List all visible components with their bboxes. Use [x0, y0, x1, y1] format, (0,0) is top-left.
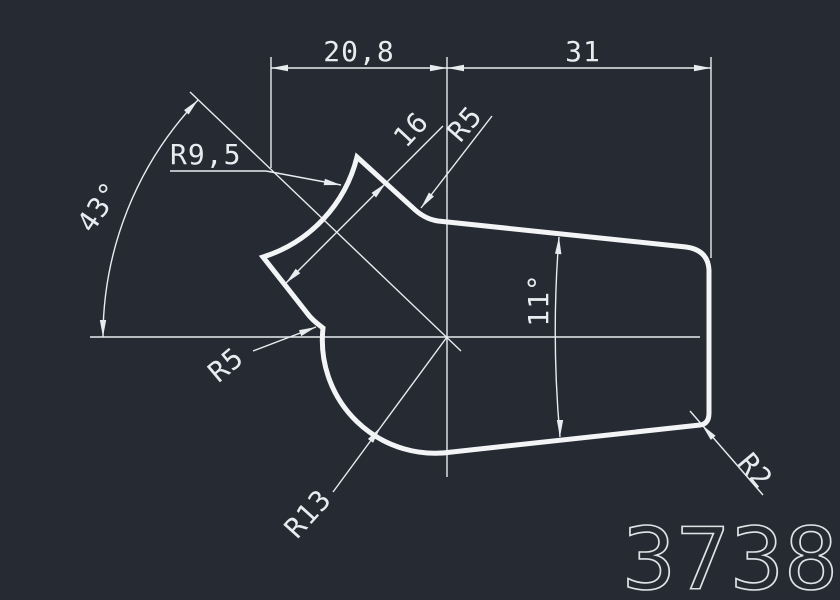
dimension-16: 16: [286, 105, 443, 283]
dimension-radius-5-top: R5: [421, 99, 492, 208]
dim-label-20-8: 20,8: [323, 35, 394, 68]
dim-label-r5-top: R5: [441, 99, 489, 148]
arrowhead-mid-left: [447, 65, 464, 71]
arrowhead-arc-bottom: [100, 320, 106, 337]
dim-label-43deg: 43°: [70, 175, 127, 238]
dimension-radius-9-5: R9,5: [170, 138, 341, 185]
arrowhead-left-out: [271, 65, 288, 71]
arrowhead-r9-5: [324, 179, 341, 185]
dim-label-16: 16: [387, 105, 435, 154]
dim-label-r13: R13: [278, 483, 338, 545]
drawing-number: 3738: [622, 510, 838, 600]
arrowhead-r5-lower: [299, 327, 316, 336]
angle-arc: [103, 100, 198, 337]
dim-label-r2: R2: [731, 447, 779, 496]
dim-label-r9-5: R9,5: [170, 138, 241, 171]
centerlines: [90, 57, 700, 477]
dimension-radius-5-lower: R5: [202, 327, 316, 389]
arrowhead-11-bottom: [557, 420, 563, 437]
cad-drawing-canvas: 20,8 31 43° R9,5 16 R5 11°: [0, 0, 840, 600]
dimension-radius-13: R13: [278, 337, 447, 545]
dim-label-11deg: 11°: [522, 273, 555, 327]
dim-label-31: 31: [565, 35, 601, 68]
arrowhead-right-out: [694, 65, 711, 71]
arrowhead-mid-right: [430, 65, 447, 71]
dim-label-r5-lower: R5: [202, 341, 251, 389]
part-profile-outline: [263, 157, 709, 453]
